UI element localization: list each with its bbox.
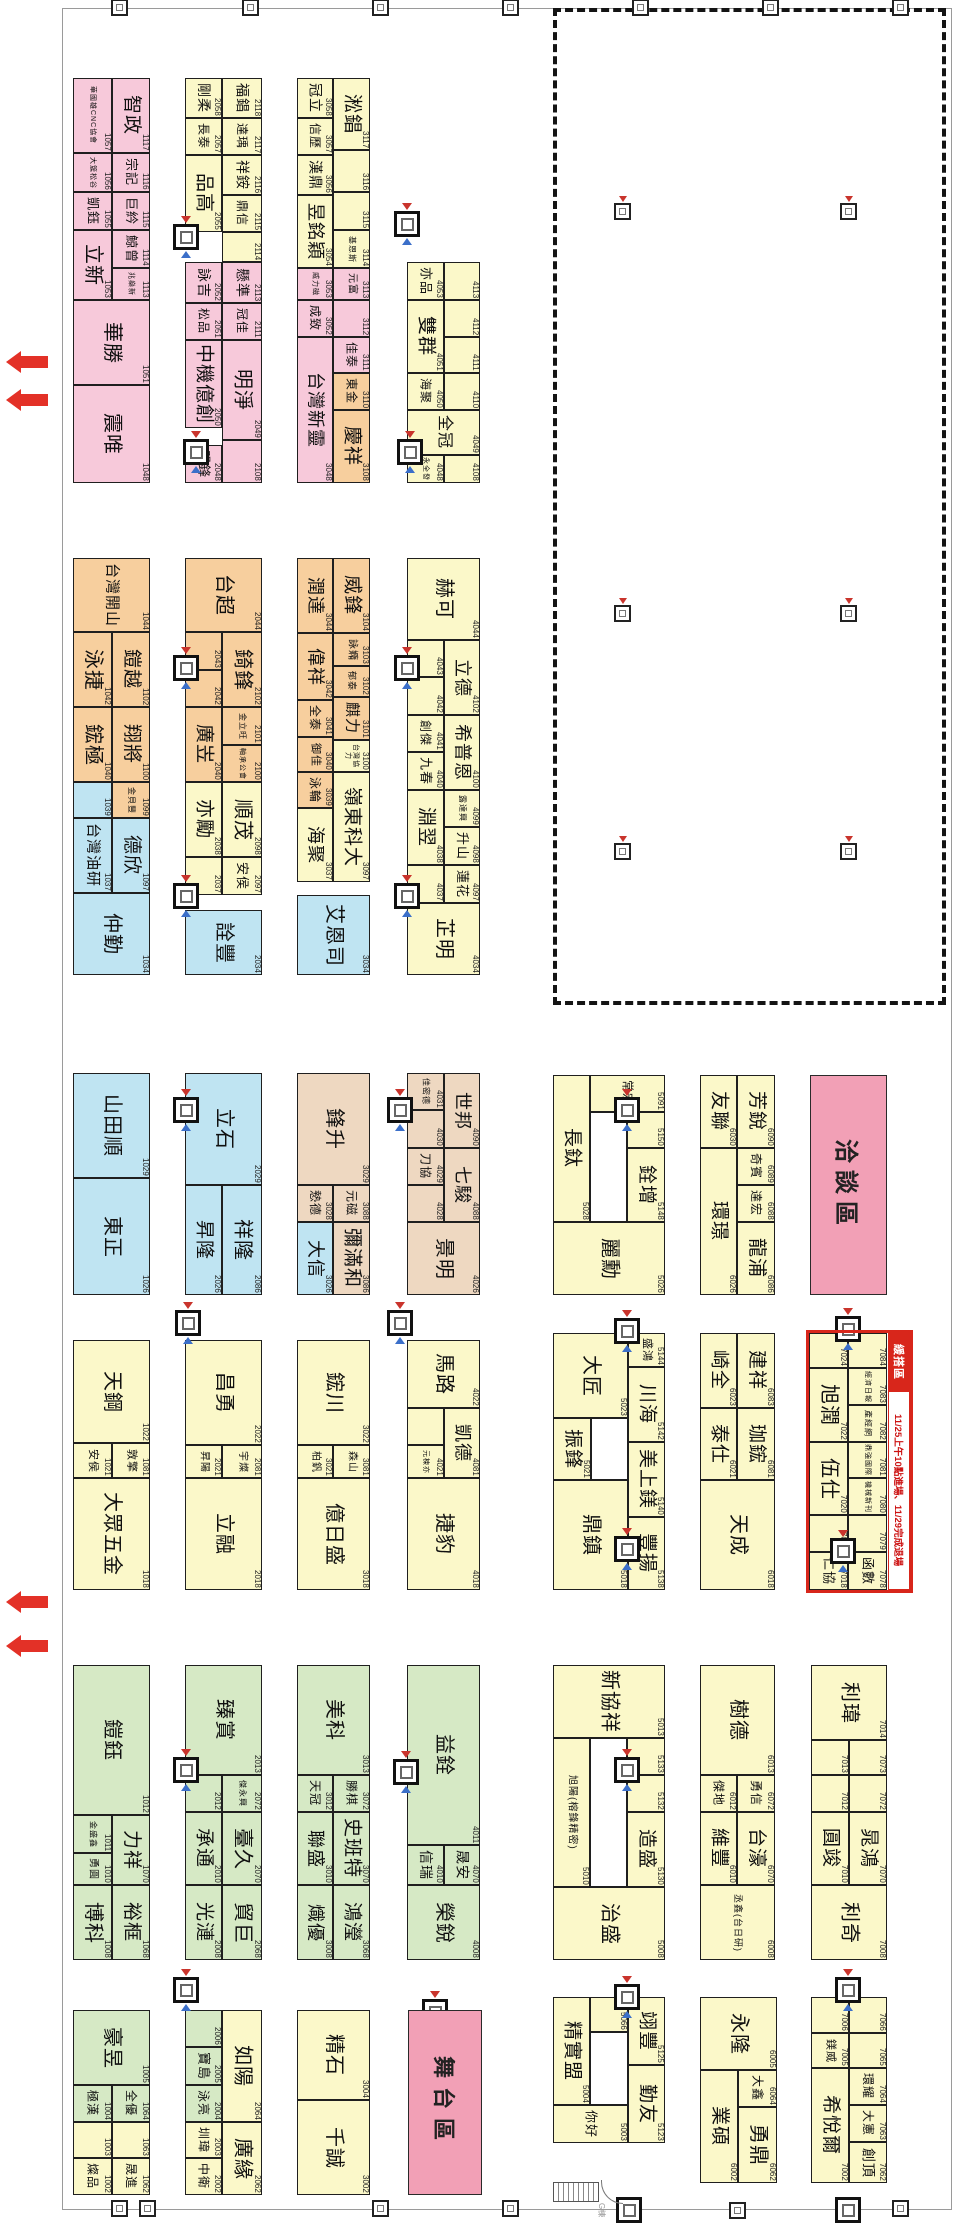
pillar-icon-inner xyxy=(377,4,384,11)
booth-name: 全冠 xyxy=(435,415,452,449)
booth-number: 2052 xyxy=(213,283,221,301)
booth-number: 3022 xyxy=(361,1425,369,1443)
booth-4026: 景明4026 xyxy=(407,1222,480,1295)
booth-name: 圳瑋 xyxy=(197,2127,209,2153)
exit-gate-icon-inner xyxy=(623,2204,636,2217)
booth-number: 1011 xyxy=(103,1834,111,1851)
booth-number: 4113 xyxy=(471,281,479,298)
booth-number: 1048 xyxy=(141,463,149,481)
booth-1048: 震唯1048 xyxy=(73,385,150,483)
pillar-icon xyxy=(502,2200,519,2217)
red-arrow-marker xyxy=(181,875,191,882)
booth-number: 3110 xyxy=(361,391,369,408)
building-g-label: G棟 xyxy=(596,2203,607,2217)
booth-2038: 亦勵2038 xyxy=(185,782,222,857)
booth-name: 極漢 xyxy=(86,2090,98,2116)
entrance-arrow-bar xyxy=(21,1640,48,1652)
booth-number: 3048 xyxy=(324,463,332,481)
courtyard xyxy=(590,2032,628,2105)
booth-number: 3113 xyxy=(361,281,369,298)
booth-number: 3012 xyxy=(324,1792,332,1810)
blue-arrow-marker xyxy=(622,1563,632,1570)
booth-1115: 巨紟1115 xyxy=(112,192,150,230)
booth-number: 2037 xyxy=(213,875,221,893)
booth-5018: 鼎鎮5018 xyxy=(553,1480,628,1590)
booth-3034: 艾恩司3034 xyxy=(297,895,370,975)
booth-6089: 奇賓6089 xyxy=(737,1148,775,1185)
booth-name: 長泰 xyxy=(197,123,209,149)
booth-4008: 榮銳4008 xyxy=(407,1885,480,1960)
booth-number: 3028 xyxy=(324,1202,332,1220)
booth-2049: 明淨2049 xyxy=(222,340,262,440)
booth-6072: 勇信6072 xyxy=(737,1775,775,1812)
blue-arrow-marker xyxy=(402,910,412,917)
booth-1097: 德欣1097 xyxy=(112,818,150,893)
booth-name: 鼎鎮 xyxy=(580,1514,601,1556)
booth-2058: 剛柔2058 xyxy=(185,78,222,118)
gate-icon xyxy=(173,1977,199,2003)
booth-number: 4011 xyxy=(471,1826,479,1843)
booth-2114: 2114 xyxy=(222,232,262,262)
booth-5013: 新協祥5013 xyxy=(553,1665,665,1738)
booth-name: 柏釩 xyxy=(310,1451,320,1473)
booth-number: 3108 xyxy=(361,463,369,481)
red-arrow-marker xyxy=(845,836,853,842)
booth-7008: 利奇7008 xyxy=(811,1885,887,1960)
gate-icon xyxy=(387,1310,413,1336)
booth-name: 川海 xyxy=(637,1384,657,1424)
booth-number: 4111 xyxy=(471,354,479,371)
booth-number: 2111 xyxy=(253,321,261,338)
empty-hall-dashed-area xyxy=(553,8,946,1005)
booth-name: 元梀亦 xyxy=(422,1450,429,1474)
booth-5008: 治盛5008 xyxy=(553,1887,665,1960)
red-arrow-marker xyxy=(619,836,627,842)
booth-1026: 東正1026 xyxy=(73,1178,150,1295)
booth-number: 2057 xyxy=(213,135,221,153)
booth-number: 2022 xyxy=(253,1425,261,1443)
booth-2026: 昇隆2026 xyxy=(185,1185,222,1295)
booth-number: 3114 xyxy=(361,249,369,266)
booth-number: 6090 xyxy=(766,1128,774,1146)
pillar-icon xyxy=(840,605,857,622)
booth-number: 5140 xyxy=(656,1497,664,1515)
booth-number: 4031 xyxy=(435,1090,443,1108)
booth-name: 詮豐 xyxy=(213,922,234,964)
booth-name: 永隆 xyxy=(728,2013,749,2055)
booth-name: 益銓 xyxy=(433,1734,454,1776)
blue-arrow-marker xyxy=(181,910,191,917)
booth-number: 1003 xyxy=(103,2138,111,2156)
booth-number: 1005 xyxy=(141,2065,149,2083)
pillar-icon xyxy=(614,605,631,622)
gate-icon-inner xyxy=(621,1991,634,2004)
blue-arrow-marker xyxy=(401,1786,411,1793)
booth-name: 力祥 xyxy=(121,1830,141,1870)
booth-number: 4026 xyxy=(471,1275,479,1293)
booth-number: 5028 xyxy=(581,1202,589,1220)
booth-name: 希普恩 xyxy=(453,724,472,781)
booth-name: 嶺東科大 xyxy=(342,787,362,867)
booth-number: 6083 xyxy=(766,1388,774,1406)
booth-name: 佳密德 xyxy=(421,1078,429,1105)
booth-number: 1097 xyxy=(141,873,149,891)
booth-5140: 美上鎂5140 xyxy=(628,1442,665,1517)
booth-name: 旭陽(榕鋒精密) xyxy=(566,1775,576,1850)
booth-number: 1116 xyxy=(141,173,149,190)
booth-4088: 七駿4088 xyxy=(444,1148,480,1222)
booth-name: 金盛鑫 xyxy=(88,1821,96,1848)
booth-name: 海聚 xyxy=(306,826,325,864)
booth-name: 翊豐 xyxy=(637,2011,657,2051)
booth-number: 3004 xyxy=(361,2080,369,2098)
booth-number: 2010 xyxy=(213,1865,221,1883)
pillar-icon xyxy=(892,0,909,16)
booth-number: 1100 xyxy=(141,763,149,780)
booth-number: 1115 xyxy=(141,211,149,228)
booth-name: 利瑋 xyxy=(839,1682,860,1724)
booth-2050: 中機億創2050 xyxy=(185,340,222,428)
gate-icon xyxy=(614,1097,640,1123)
booth-6088: 達宏6088 xyxy=(737,1185,775,1222)
booth-name: 祥隆 xyxy=(232,1219,253,1261)
booth-number: 4053 xyxy=(435,280,443,298)
booth-name: 盛鴻 xyxy=(641,1338,652,1362)
booth-number: 3081 xyxy=(361,1458,369,1476)
booth-number: 1021 xyxy=(103,1458,111,1476)
booth-number: 3070 xyxy=(361,1865,369,1883)
booth-name: 鎂威 xyxy=(824,2039,835,2063)
blue-arrow-marker xyxy=(181,682,191,689)
pillar-icon xyxy=(892,2200,909,2217)
blue-arrow-marker xyxy=(181,1784,191,1791)
red-arrow-marker xyxy=(622,1089,632,1096)
booth-number: 3008 xyxy=(324,1940,332,1958)
booth-name: 寶島 xyxy=(197,2052,211,2080)
booth-number: 2117 xyxy=(253,136,261,153)
booth-name: 天冠 xyxy=(309,1780,321,1806)
booth-6062: 勇鼎6062 xyxy=(738,2107,777,2183)
booth-number: 7005 xyxy=(840,2048,848,2066)
booth-1040: 鋐極1040 xyxy=(73,707,112,782)
booth-number: 6008 xyxy=(766,1940,774,1958)
booth-name: 御佳 xyxy=(309,743,320,767)
booth-name: 利奇 xyxy=(839,1902,860,1944)
booth-name: 錡鋒 xyxy=(232,649,253,691)
red-arrow-marker xyxy=(619,598,627,604)
pillar-icon-inner xyxy=(507,4,514,11)
booth-2005: 寶島2005 xyxy=(185,2047,222,2085)
booth-name: 芷明 xyxy=(433,918,454,960)
booth-2111: 冠佳2111 xyxy=(222,303,262,340)
booth-number: 6013 xyxy=(766,1755,774,1773)
booth-3081: 森山3081 xyxy=(333,1445,370,1478)
booth-number: 1042 xyxy=(103,687,111,705)
booth-4022: 馬路4022 xyxy=(407,1340,480,1408)
booth-name: 鋐川 xyxy=(323,1372,344,1414)
blue-arrow-marker xyxy=(622,1345,632,1352)
booth-4081: 凱德4081 xyxy=(444,1408,480,1478)
booth-3112: 3112 xyxy=(333,300,370,337)
gate-icon-inner xyxy=(842,1984,855,1997)
booth-number: 3112 xyxy=(361,318,369,335)
booth-number: 3044 xyxy=(324,613,332,631)
booth-6064: 大鑫6064 xyxy=(738,2070,777,2107)
booth-number: 5008 xyxy=(656,1940,664,1958)
red-arrow-marker xyxy=(191,431,201,438)
blue-arrow-marker xyxy=(395,1124,405,1131)
booth-number: 1114 xyxy=(141,249,149,266)
pillar-icon-inner xyxy=(507,2205,514,2212)
pillar-icon-inner xyxy=(377,2205,384,2212)
courtyard xyxy=(591,1418,628,1480)
booth-2100: 軸承公會2100 xyxy=(222,745,262,782)
booth-2113: 懸準2113 xyxy=(222,262,262,303)
booth-4108: 4108 xyxy=(444,455,480,483)
booth-6030: 友聯6030 xyxy=(700,1075,737,1148)
booth-2117: 達瑀2117 xyxy=(222,118,262,155)
booth-1022: 天鋼1022 xyxy=(73,1340,150,1443)
booth-1034: 仲勤1034 xyxy=(73,893,150,975)
booth-1070: 力祥1070 xyxy=(112,1815,150,1885)
booth-5023: 大匠5023 xyxy=(553,1333,628,1418)
booth-3088: 元磁3088 xyxy=(333,1185,370,1222)
gate-icon-inner xyxy=(180,1984,193,1997)
booth-number: 7070 xyxy=(878,1865,886,1883)
booth-7062: 創頂7062 xyxy=(849,2142,887,2183)
booth-3057: 信歷3057 xyxy=(297,118,333,155)
stage-zone-label: 舞台區 xyxy=(429,2056,461,2149)
booth-name: 剛柔 xyxy=(196,83,211,113)
booth-3054: 昱銘穎3054 xyxy=(297,195,333,268)
booth-name: 泳捷 xyxy=(82,649,103,691)
booth-2115: 鼎信2115 xyxy=(222,195,262,232)
booth-number: 6081 xyxy=(766,1460,774,1478)
booth-2022: 昌勇2022 xyxy=(185,1340,262,1445)
booth-number: 7063 xyxy=(878,2122,886,2140)
booth-name: 臺久 xyxy=(232,1828,253,1870)
gate-icon xyxy=(173,655,199,681)
booth-number: 7014 xyxy=(878,1720,886,1738)
booth-name: 建祥 xyxy=(746,1350,766,1390)
booth-number: 4090 xyxy=(471,1128,479,1146)
gate-icon xyxy=(394,883,420,909)
blue-arrow-marker xyxy=(181,251,191,258)
booth-3113: 元富3113 xyxy=(333,268,370,300)
booth-number: 4029 xyxy=(435,1165,443,1183)
booth-4051: 雙群4051 xyxy=(407,300,444,373)
booth-3101: 麒力3101 xyxy=(333,697,370,740)
red-arrow-marker xyxy=(401,1751,411,1758)
entrance-arrow-head xyxy=(6,389,21,411)
booth-number: 5123 xyxy=(656,2123,664,2141)
booth-number: 2114 xyxy=(253,243,261,260)
booth-3053: 威力磁3053 xyxy=(297,268,333,300)
pillar-icon-inner xyxy=(116,2205,123,2212)
booth-1062: 晟進1062 xyxy=(112,2158,150,2195)
booth-number: 3086 xyxy=(361,1275,369,1293)
booth-name: 熾優 xyxy=(306,1904,325,1942)
booth-4053: 亦品4053 xyxy=(407,262,444,300)
gate-icon-inner xyxy=(401,662,414,675)
booth-number: 4088 xyxy=(471,1202,479,1220)
booth-number: 4051 xyxy=(435,353,443,371)
booth-number: 1099 xyxy=(141,798,149,816)
entrance-arrow-bar xyxy=(21,394,48,406)
booth-number: 4043 xyxy=(435,657,443,675)
booth-number: 2018 xyxy=(253,1570,261,1588)
booth-name: 振鋒 xyxy=(562,1429,582,1469)
gate-icon xyxy=(387,1097,413,1123)
booth-4097: 蓮花4097 xyxy=(444,865,480,903)
booth-number: 2068 xyxy=(253,1940,261,1958)
booth-number: 4099 xyxy=(471,807,479,825)
pillar-icon xyxy=(614,203,631,220)
booth-name: 七駿 xyxy=(453,1166,472,1204)
booth-1068: 裕框1068 xyxy=(112,1885,150,1960)
gate-icon-inner xyxy=(180,231,193,244)
booth-name: 祥銨 xyxy=(235,160,250,190)
pillar-icon-inner xyxy=(619,848,626,855)
gate-icon-inner xyxy=(621,1543,634,1556)
booth-2086: 祥隆2086 xyxy=(222,1185,262,1295)
gate-icon xyxy=(393,1759,419,1785)
pillar-icon-inner xyxy=(116,4,123,11)
booth-number: 4041 xyxy=(435,732,443,750)
booth-number: 5133 xyxy=(656,1755,664,1773)
booth-name: 刀協 xyxy=(419,1153,431,1179)
booth-number: 1010 xyxy=(103,1865,111,1883)
booth-3029: 鋒升3029 xyxy=(297,1073,370,1185)
red-arrow-marker xyxy=(181,1749,191,1756)
booth-number: 4028 xyxy=(435,1202,443,1220)
booth-name: 榮銳 xyxy=(433,1902,454,1944)
late-teardown-schedule: 11/25上午10點進場、11/29完成退場 xyxy=(888,1391,910,1590)
booth-number: 2002 xyxy=(213,2175,221,2193)
booth-number: 2005 xyxy=(213,2065,221,2083)
gate-icon xyxy=(173,1097,199,1123)
booth-number: 4040 xyxy=(435,770,443,788)
booth-name: 晁鴻 xyxy=(858,1828,878,1868)
booth-number: 7002 xyxy=(840,2163,848,2181)
booth-name: 慶祥 xyxy=(342,426,362,466)
blue-arrow-marker xyxy=(622,2011,632,2018)
booth-number: 3039 xyxy=(324,788,332,806)
gate-icon-inner xyxy=(180,890,193,903)
booth-name: 全優 xyxy=(125,2090,137,2116)
booth-5021: 振鋒5021 xyxy=(553,1418,591,1480)
booth-name: 珈鋐 xyxy=(746,1424,766,1464)
booth-name: 大眾五金 xyxy=(101,1492,122,1576)
booth-3028: 慹德3028 xyxy=(297,1185,333,1222)
booth-4111: 4111 xyxy=(444,337,480,373)
pillar-icon-inner xyxy=(897,4,904,11)
booth-5123: 勤友5123 xyxy=(628,2065,665,2143)
booth-number: 3068 xyxy=(361,1940,369,1958)
booth-3008: 熾優3008 xyxy=(297,1885,333,1960)
booth-name: 大鑫 xyxy=(751,2075,763,2101)
booth-number: 4034 xyxy=(471,955,479,973)
booth-number: 6064 xyxy=(768,2087,776,2105)
red-arrow-marker xyxy=(845,196,853,202)
booth-number: 3104 xyxy=(361,613,369,631)
blue-arrow-marker xyxy=(622,1784,632,1791)
booth-name: 捷豹 xyxy=(433,1513,454,1555)
booth-number: 1117 xyxy=(141,134,149,151)
pillar-icon xyxy=(762,0,779,16)
booth-name: 明淨 xyxy=(232,369,253,411)
pillar-icon xyxy=(372,0,389,16)
booth-3012: 天冠3012 xyxy=(297,1775,333,1812)
blue-arrow-marker xyxy=(843,2004,853,2011)
booth-7072: 7072 xyxy=(849,1775,887,1812)
booth-1039: 1039 xyxy=(73,782,112,818)
booth-number: 2086 xyxy=(253,1275,261,1293)
booth-name: 豪昱 xyxy=(101,2027,122,2069)
booth-number: 3010 xyxy=(324,1865,332,1883)
booth-name: 淵翌 xyxy=(416,807,436,847)
booth-1116: 宗記1116 xyxy=(112,153,150,192)
booth-name: 台灣開山 xyxy=(104,563,120,627)
booth-name: 鼎信 xyxy=(236,200,248,226)
booth-name: 創頂 xyxy=(861,2148,876,2178)
booth-name: 品高 xyxy=(194,173,214,213)
red-arrow-marker xyxy=(181,1969,191,1976)
booth-5026: 麗勳5026 xyxy=(553,1222,665,1295)
booth-1044: 台灣開山1044 xyxy=(73,558,150,632)
exit-gate-icon-inner xyxy=(842,2204,855,2217)
booth-number: 5142 xyxy=(656,1422,664,1440)
entrance-arrow-head xyxy=(6,1591,21,1613)
gate-icon-inner xyxy=(401,890,414,903)
booth-4070: 晟安4070 xyxy=(444,1845,480,1885)
booth-name: 新協祥 xyxy=(599,1670,620,1733)
booth-number: 5144 xyxy=(656,1347,664,1365)
booth-2101: 金立旺2101 xyxy=(222,707,262,745)
red-arrow-marker xyxy=(843,1308,853,1315)
booth-number: 2050 xyxy=(213,408,221,426)
booth-7063: 大憲7063 xyxy=(849,2105,887,2142)
booth-3111: 佳泰3111 xyxy=(333,337,370,373)
booth-name: 貿巨 xyxy=(232,1902,253,1944)
booth-number: 6012 xyxy=(728,1792,736,1810)
booth-7065: 7065 xyxy=(849,2033,887,2068)
booth-number: 4042 xyxy=(435,695,443,713)
booth-2116: 祥銨2116 xyxy=(222,155,262,195)
booth-name: 泰仕 xyxy=(709,1424,729,1464)
booth-6012: 傑地6012 xyxy=(700,1775,737,1812)
booth-name: 台灣協力 xyxy=(344,741,359,770)
booth-5148: 銓增5148 xyxy=(627,1148,665,1222)
booth-number: 4081 xyxy=(471,1458,479,1476)
booth-number: 3117 xyxy=(361,131,369,148)
pillar-icon-inner xyxy=(247,4,254,11)
gate-icon xyxy=(614,1536,640,1562)
booth-2064: 如陽2064 xyxy=(222,2010,262,2122)
red-arrow-marker xyxy=(843,1969,853,1976)
booth-number: 4044 xyxy=(471,620,479,638)
booth-1053: 立新1053 xyxy=(73,230,112,300)
booth-name: 元富 xyxy=(346,273,356,295)
booth-number: 2108 xyxy=(253,463,261,481)
entrance-arrow-head xyxy=(6,351,21,373)
booth-name: 大匠 xyxy=(580,1355,601,1397)
booth-name: 漢鼎 xyxy=(308,160,323,190)
booth-name: 麗勳 xyxy=(599,1238,620,1280)
booth-name: 蓮花 xyxy=(455,870,469,898)
gate-icon xyxy=(614,1984,640,2010)
entrance-arrow-icon xyxy=(6,389,48,411)
